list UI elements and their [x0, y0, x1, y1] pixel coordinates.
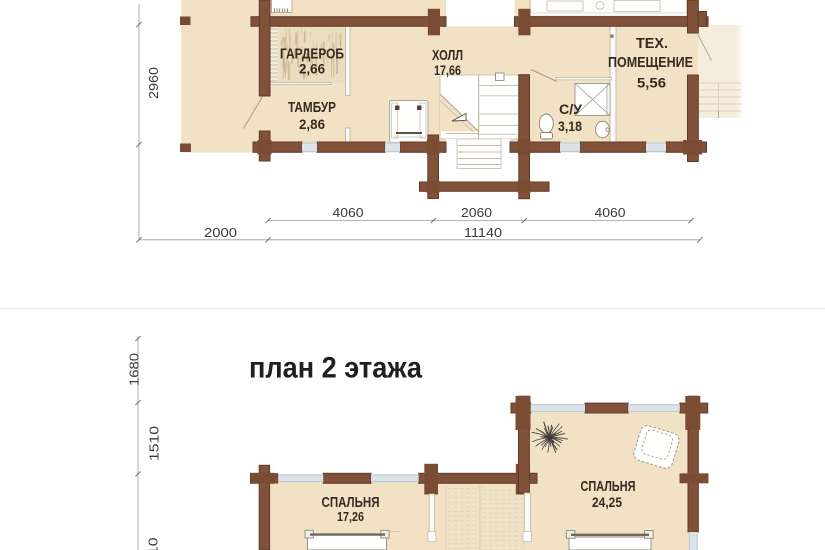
svg-text:ТАМБУР: ТАМБУР [288, 99, 336, 116]
svg-text:план 2 этажа: план 2 этажа [249, 352, 422, 385]
svg-text:2000: 2000 [204, 226, 237, 240]
svg-text:2,86: 2,86 [299, 116, 325, 132]
svg-text:2110: 2110 [147, 537, 161, 550]
svg-text:1510: 1510 [147, 426, 161, 461]
svg-text:24,25: 24,25 [592, 494, 622, 510]
svg-text:5,56: 5,56 [637, 75, 666, 91]
svg-text:11140: 11140 [464, 226, 502, 240]
svg-text:3,18: 3,18 [558, 118, 582, 134]
svg-text:1680: 1680 [127, 353, 141, 386]
svg-text:2960: 2960 [147, 67, 161, 99]
svg-text:2,66: 2,66 [299, 61, 325, 77]
svg-text:ТЕХ.: ТЕХ. [636, 35, 668, 52]
svg-text:С/У: С/У [559, 101, 582, 117]
svg-text:4060: 4060 [333, 206, 364, 220]
svg-text:СПАЛЬНЯ: СПАЛЬНЯ [581, 478, 636, 495]
svg-text:17,26: 17,26 [337, 509, 364, 524]
svg-text:2060: 2060 [461, 206, 492, 220]
svg-text:4060: 4060 [595, 206, 626, 220]
svg-text:ПОМЕЩЕНИЕ: ПОМЕЩЕНИЕ [608, 54, 693, 71]
svg-text:17,66: 17,66 [434, 62, 461, 78]
